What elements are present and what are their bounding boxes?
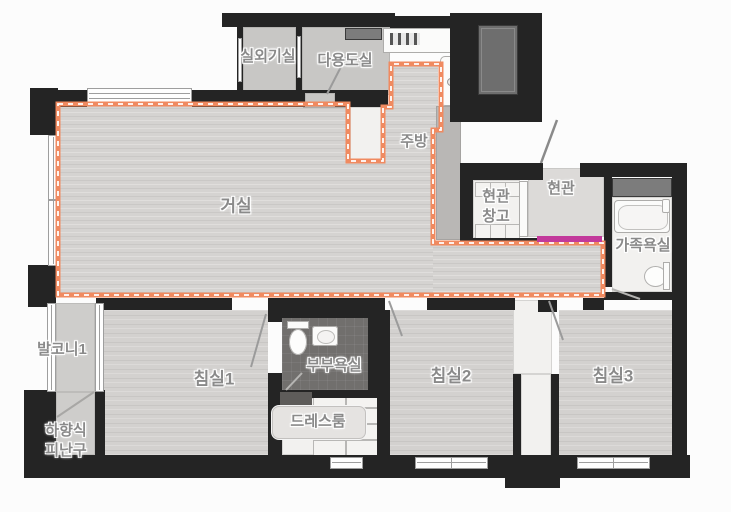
wall [538, 300, 557, 312]
wall [672, 165, 687, 478]
wall [551, 374, 559, 457]
label-entrance-storage: 현관 창고 [482, 187, 510, 228]
window [48, 135, 59, 266]
wardrobe-cell [313, 440, 346, 456]
bath-shelf [662, 199, 670, 213]
wardrobe-cell [346, 440, 379, 456]
wall [268, 298, 282, 322]
between-bedroom-strip [521, 374, 551, 457]
window [297, 36, 301, 78]
label-kitchen: 주방 [400, 132, 428, 152]
label-escape-hatch-line2: 피난구 [45, 442, 86, 459]
wall [505, 478, 560, 488]
duct-space [345, 28, 382, 40]
cooktop-icon [390, 33, 420, 45]
label-living-room: 거실 [220, 196, 251, 219]
wall [473, 163, 543, 180]
label-bedroom3: 침실3 [593, 366, 634, 389]
corridor-floor [433, 243, 603, 296]
family-toilet-tank [663, 262, 670, 290]
wall [427, 298, 515, 310]
label-family-bathroom: 가족욕실 [615, 236, 670, 256]
floor-plan-page: { "page": { "background": "#fcfcfc" }, "… [0, 0, 731, 512]
label-dress-room: 드레스룸 [290, 412, 345, 432]
label-balcony1: 발코니1 [37, 340, 87, 360]
duct-space [612, 178, 672, 197]
fridge-nook [350, 107, 383, 161]
dressroom-shelf-dark [280, 392, 312, 406]
wall [460, 238, 538, 243]
shoe-cabinet [519, 181, 528, 237]
label-utility-room: 다용도실 [317, 51, 372, 71]
wall [604, 177, 612, 287]
kitchen-counter-column [436, 106, 461, 240]
label-entrance: 현관 [547, 179, 575, 199]
wall [382, 310, 390, 457]
window [330, 457, 363, 469]
wall [583, 298, 604, 310]
wall [580, 163, 687, 177]
wall [96, 298, 232, 310]
bedroom1-floor [104, 310, 268, 455]
label-bedroom2: 침실2 [431, 366, 472, 389]
wall [95, 390, 105, 457]
label-escape-hatch-line1: 하향식 [45, 422, 86, 439]
wall [58, 90, 87, 107]
front-door-leaf [541, 120, 557, 163]
wall [282, 298, 385, 318]
utility-door-opening [305, 93, 335, 107]
master-toilet-tank [287, 321, 309, 329]
window [415, 457, 488, 469]
window [95, 303, 104, 392]
wall [222, 13, 395, 27]
elevator-shaft [478, 25, 518, 95]
wall [30, 88, 58, 135]
window [577, 457, 650, 469]
wash-basin-bowl [317, 330, 335, 344]
bathtub-inner [618, 205, 668, 230]
wall [390, 16, 452, 28]
label-bedroom1: 침실1 [194, 369, 235, 392]
label-outdoor-unit-room: 실외기실 [240, 47, 295, 67]
label-entrance-storage-line2: 창고 [482, 208, 510, 225]
wall [604, 292, 687, 300]
wall [513, 374, 521, 457]
label-entrance-storage-line1: 현관 [482, 188, 510, 205]
label-master-bathroom: 부부욕실 [306, 356, 361, 376]
wall [460, 163, 473, 245]
wall [28, 265, 56, 307]
master-toilet-icon [289, 329, 307, 355]
label-escape-hatch: 하향식 피난구 [45, 421, 86, 462]
window [87, 88, 192, 104]
